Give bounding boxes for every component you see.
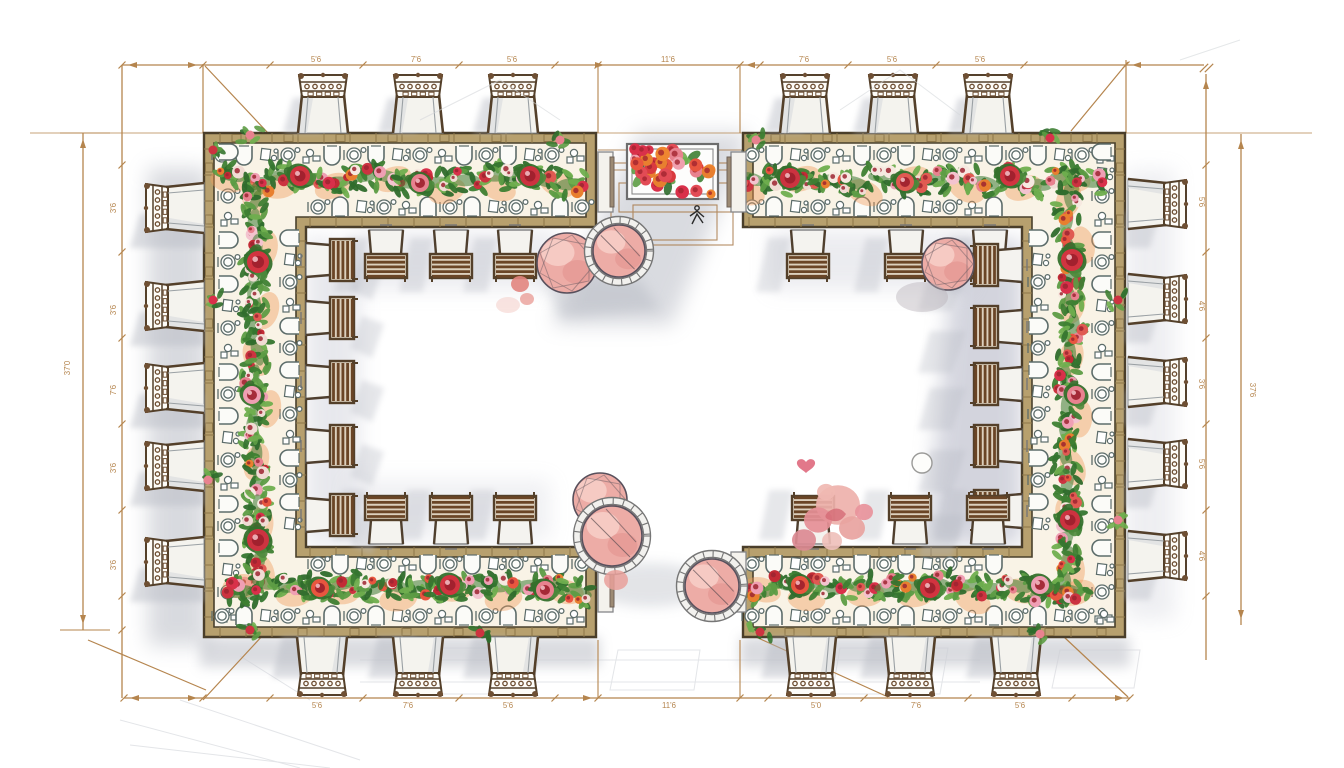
svg-text:11'6: 11'6 bbox=[661, 55, 675, 64]
svg-text:7'6: 7'6 bbox=[411, 55, 421, 64]
svg-text:3'6: 3'6 bbox=[109, 203, 118, 213]
svg-text:37'0: 37'0 bbox=[63, 360, 72, 375]
svg-text:5'6: 5'6 bbox=[311, 55, 321, 64]
svg-text:7'6: 7'6 bbox=[403, 701, 413, 710]
svg-text:4'6: 4'6 bbox=[1197, 301, 1206, 311]
svg-text:3'6: 3'6 bbox=[109, 463, 118, 473]
svg-text:5'6: 5'6 bbox=[1197, 459, 1206, 469]
svg-text:4'6: 4'6 bbox=[1197, 551, 1206, 561]
svg-text:5'0: 5'0 bbox=[811, 701, 822, 710]
svg-text:5'6: 5'6 bbox=[312, 701, 322, 710]
svg-text:7'6: 7'6 bbox=[109, 385, 118, 395]
svg-text:5'6: 5'6 bbox=[507, 55, 517, 64]
svg-text:37'6: 37'6 bbox=[1248, 383, 1257, 398]
svg-text:5'6: 5'6 bbox=[1197, 197, 1206, 207]
svg-text:3'6: 3'6 bbox=[109, 560, 118, 570]
svg-text:5'6: 5'6 bbox=[503, 701, 513, 710]
svg-text:11'6: 11'6 bbox=[662, 701, 676, 710]
svg-text:3'6: 3'6 bbox=[1197, 379, 1206, 389]
svg-text:5'6: 5'6 bbox=[887, 55, 897, 64]
svg-text:3'6: 3'6 bbox=[109, 305, 118, 315]
svg-text:5'6: 5'6 bbox=[975, 55, 985, 64]
svg-text:5'6: 5'6 bbox=[1015, 701, 1025, 710]
svg-text:7'6: 7'6 bbox=[911, 701, 921, 710]
svg-text:7'6: 7'6 bbox=[799, 55, 809, 64]
